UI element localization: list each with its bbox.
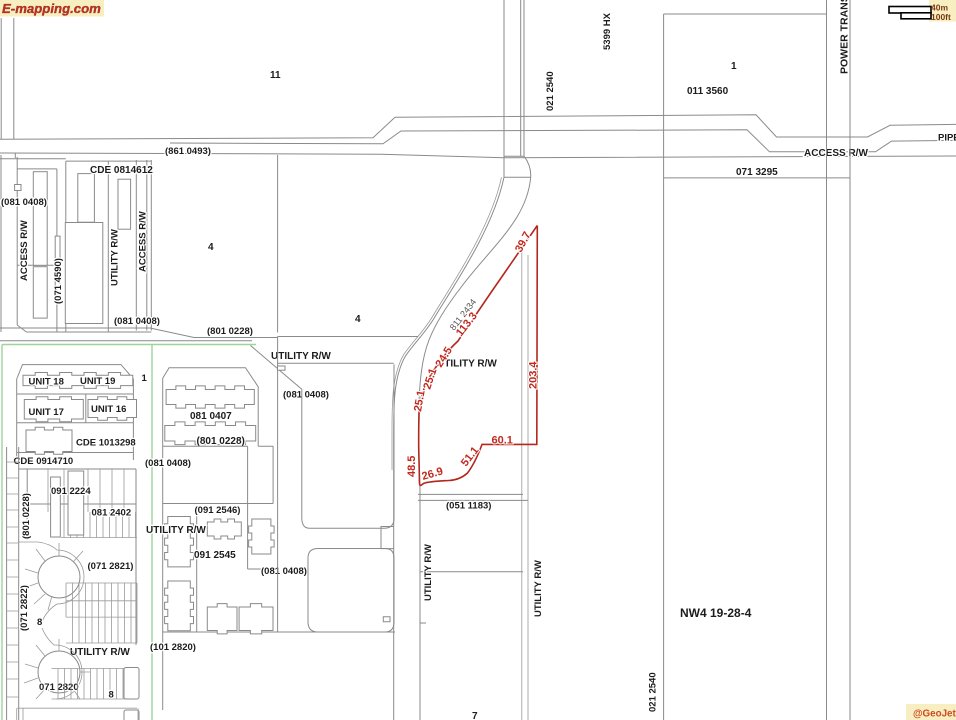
svg-text:(801 0228): (801 0228) (207, 326, 253, 337)
svg-text:1: 1 (142, 373, 148, 384)
svg-text:091 2224: 091 2224 (51, 486, 91, 497)
svg-text:60.1: 60.1 (492, 435, 513, 447)
svg-text:(071 2821): (071 2821) (88, 561, 134, 572)
svg-text:081 2402: 081 2402 (92, 508, 132, 519)
svg-text:021 2540: 021 2540 (545, 71, 556, 111)
svg-text:UTILITY R/W: UTILITY R/W (70, 647, 130, 658)
svg-text:UNIT 17: UNIT 17 (29, 407, 64, 418)
svg-text:1: 1 (731, 61, 737, 72)
svg-text:4: 4 (208, 242, 214, 253)
svg-text:091 2545: 091 2545 (194, 550, 236, 561)
svg-text:071 2820: 071 2820 (39, 682, 79, 693)
svg-text:(081 0408): (081 0408) (114, 316, 160, 327)
svg-text:CDE 0914710: CDE 0914710 (14, 456, 74, 467)
svg-text:ACCESS R/W: ACCESS R/W (138, 211, 149, 272)
svg-text:5399 HX: 5399 HX (602, 12, 613, 50)
svg-text:(081 0408): (081 0408) (1, 197, 47, 208)
svg-text:100ft: 100ft (931, 12, 951, 22)
svg-text:CDE 0814612: CDE 0814612 (90, 165, 153, 176)
svg-text:(071 2822): (071 2822) (19, 585, 30, 631)
svg-text:203.4: 203.4 (528, 361, 540, 389)
svg-text:UTILITY R/W: UTILITY R/W (110, 229, 121, 286)
svg-text:081 0407: 081 0407 (190, 411, 232, 422)
svg-text:UTILITY R/W: UTILITY R/W (423, 544, 434, 601)
svg-text:NW4 19-28-4: NW4 19-28-4 (680, 606, 752, 620)
svg-text:40m: 40m (931, 3, 948, 13)
svg-text:(081 0408): (081 0408) (145, 458, 191, 469)
svg-text:8: 8 (37, 617, 42, 628)
svg-text:POWER TRANS: POWER TRANS (839, 0, 851, 74)
svg-text:(071 4590): (071 4590) (53, 258, 64, 304)
svg-text:(801 0228): (801 0228) (197, 436, 245, 447)
svg-text:(801 0228): (801 0228) (21, 493, 32, 539)
svg-text:(081 0408): (081 0408) (283, 390, 329, 401)
svg-text:UTILITY R/W: UTILITY R/W (533, 560, 544, 617)
svg-text:CDE 1013298: CDE 1013298 (76, 438, 136, 449)
svg-text:(081 0408): (081 0408) (261, 566, 307, 577)
svg-text:PIPEL: PIPEL (938, 133, 956, 144)
svg-text:(861 0493): (861 0493) (165, 146, 211, 157)
svg-text:8: 8 (109, 690, 114, 701)
svg-text:(101 2820): (101 2820) (150, 642, 196, 653)
svg-text:@GeoJet: @GeoJet (913, 709, 956, 720)
svg-text:48.5: 48.5 (406, 456, 418, 477)
svg-text:(091 2546): (091 2546) (195, 505, 241, 516)
svg-text:011 3560: 011 3560 (687, 86, 729, 97)
svg-text:ACCESS R/W: ACCESS R/W (804, 148, 868, 159)
svg-text:UTILITY R/W: UTILITY R/W (146, 525, 206, 536)
svg-text:11: 11 (270, 70, 281, 81)
svg-text:7: 7 (472, 711, 478, 720)
svg-text:021 2540: 021 2540 (648, 672, 659, 712)
svg-text:(051 1183): (051 1183) (446, 501, 491, 512)
svg-text:4: 4 (355, 314, 361, 325)
svg-text:UTILITY R/W: UTILITY R/W (271, 351, 331, 362)
svg-text:UNIT 18: UNIT 18 (29, 377, 64, 388)
svg-text:ACCESS R/W: ACCESS R/W (19, 220, 30, 281)
svg-text:UNIT 19: UNIT 19 (80, 376, 115, 387)
svg-text:E-mapping.com: E-mapping.com (2, 1, 101, 16)
svg-text:UNIT 16: UNIT 16 (91, 404, 126, 415)
svg-text:071 3295: 071 3295 (736, 167, 778, 178)
